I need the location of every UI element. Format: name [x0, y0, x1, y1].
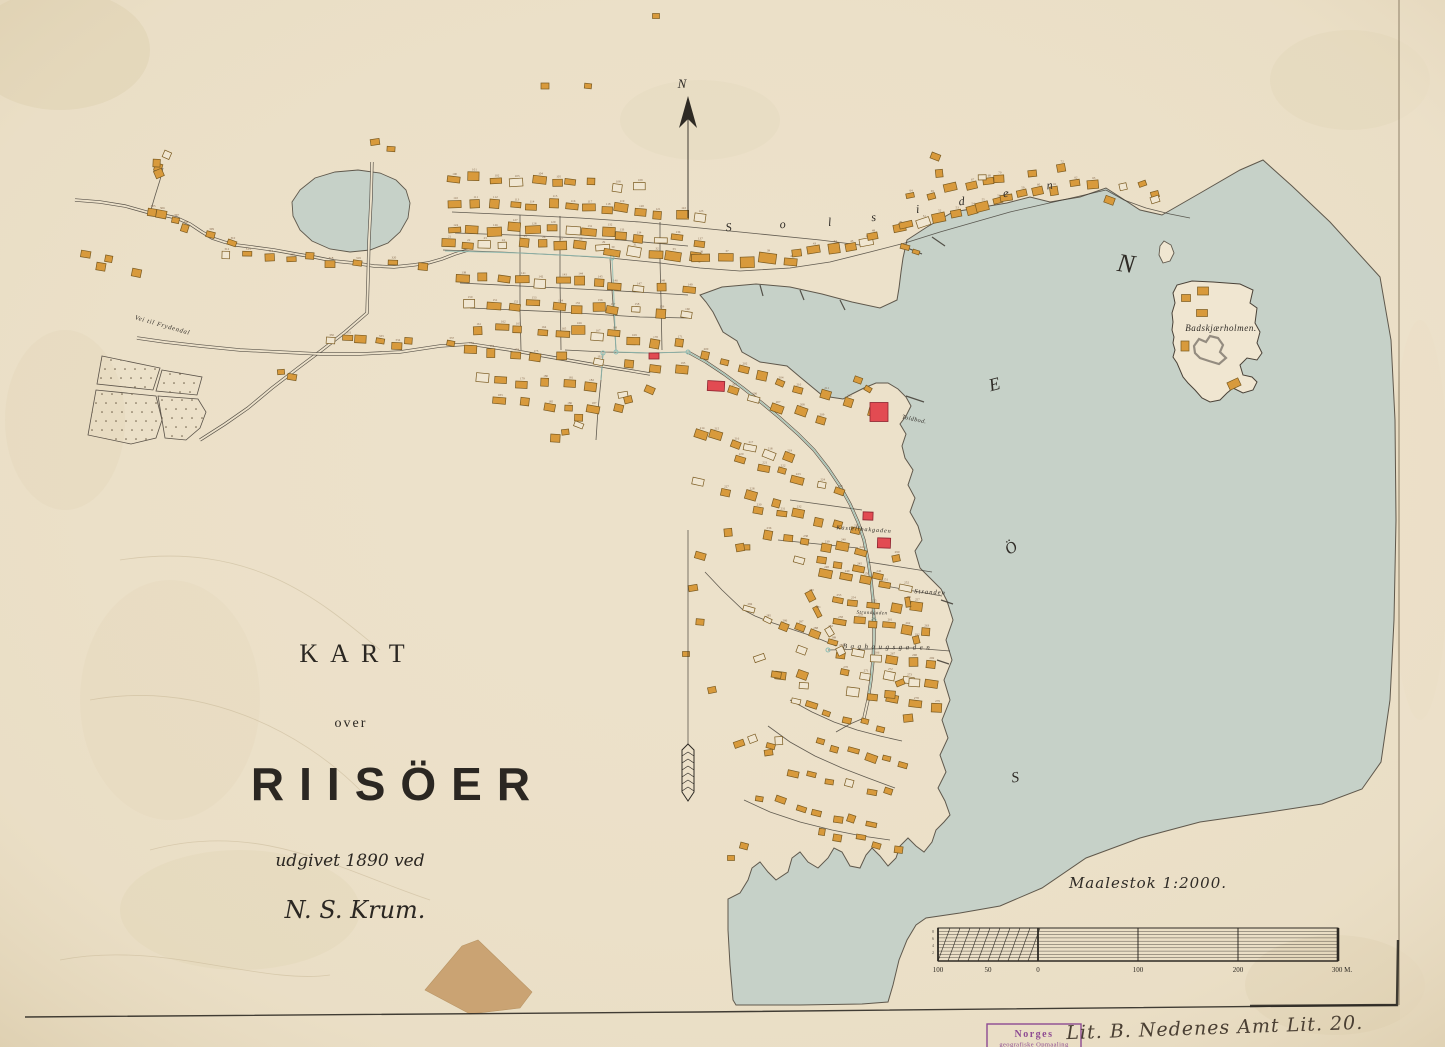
building	[353, 260, 362, 267]
building	[653, 14, 660, 19]
plot-number: 28	[579, 236, 583, 240]
plot-number: 252	[904, 581, 909, 585]
building	[131, 268, 142, 277]
plot-number: 136	[676, 230, 681, 234]
building	[549, 199, 558, 208]
plot-number: 195	[681, 361, 686, 365]
plot-number: 108	[616, 180, 621, 184]
building	[538, 329, 548, 336]
plot-number: 23	[484, 236, 488, 240]
plot-number: 292	[915, 632, 920, 636]
building	[492, 397, 505, 404]
plot-number: 25	[524, 234, 528, 238]
plot-number: 143	[562, 273, 567, 277]
plot-number: 305	[151, 204, 156, 208]
building	[763, 530, 773, 540]
plot-number: 114	[530, 200, 535, 204]
plot-number: 227	[724, 485, 729, 489]
plot-number: 239	[825, 539, 830, 543]
public-building-red	[870, 403, 888, 422]
building	[719, 253, 734, 261]
plot-number: 32	[655, 246, 659, 250]
plot-number: 48	[872, 228, 876, 232]
building	[490, 178, 502, 184]
building	[764, 749, 773, 756]
plot-number: 159	[659, 305, 664, 309]
building	[627, 246, 642, 258]
building	[994, 175, 1004, 183]
building	[156, 209, 167, 218]
building	[418, 263, 428, 271]
building	[573, 240, 586, 249]
building	[392, 342, 402, 349]
building	[508, 222, 521, 232]
building	[633, 285, 644, 292]
plot-number: 101	[472, 167, 477, 171]
plot-number: 131	[587, 224, 592, 228]
building	[509, 303, 520, 311]
building	[623, 395, 632, 403]
island-building	[1182, 295, 1191, 302]
plot-number: 248	[824, 565, 829, 569]
plot-number: 44	[834, 239, 838, 243]
plot-number: 149	[688, 282, 693, 286]
plot-number: 148	[660, 279, 665, 283]
building	[581, 228, 597, 236]
plot-number: 109	[638, 178, 643, 182]
building	[894, 846, 903, 854]
island-building	[1197, 310, 1208, 317]
building	[305, 252, 314, 259]
plot-number: 310	[230, 236, 235, 240]
plot-number: 63	[1092, 176, 1096, 180]
plot-number: 61	[1053, 182, 1057, 186]
building	[442, 239, 456, 247]
plot-number: 284	[747, 602, 752, 606]
building	[575, 276, 585, 285]
plot-number: 118	[606, 202, 611, 206]
plot-number: 62	[1074, 175, 1078, 179]
plot-number: 111	[473, 195, 478, 199]
plot-number: 231	[780, 506, 785, 510]
plot-number: 258	[838, 615, 843, 619]
building	[554, 241, 567, 250]
plot-number: 288	[813, 626, 818, 630]
building	[464, 345, 477, 353]
building	[463, 299, 474, 308]
building	[696, 619, 704, 626]
plot-number: 185	[548, 399, 553, 403]
plot-number: 67	[971, 178, 975, 182]
plot-number: 331	[346, 331, 351, 335]
plot-number: 290	[895, 550, 900, 554]
building	[1056, 163, 1065, 172]
scale-row-label: 8	[932, 929, 934, 934]
building	[624, 360, 634, 368]
map-title-kart: KART	[299, 639, 416, 668]
building	[799, 682, 809, 689]
plot-number: 122	[681, 206, 686, 210]
building	[775, 736, 783, 744]
island-building	[1181, 341, 1189, 351]
public-building-red	[863, 512, 873, 520]
plot-number: 225	[838, 484, 843, 488]
plot-number: 315	[290, 252, 295, 256]
plot-number: 306	[160, 206, 165, 210]
plot-number: 313	[246, 247, 251, 251]
building	[556, 277, 570, 283]
building	[792, 249, 802, 257]
building	[847, 600, 857, 607]
building	[771, 671, 782, 679]
building	[856, 834, 866, 840]
plot-number: 152	[513, 299, 518, 303]
plot-number: 238	[803, 534, 808, 538]
building	[883, 671, 895, 681]
plot-number: 312	[224, 247, 229, 251]
building	[602, 227, 615, 237]
building	[683, 652, 690, 657]
building	[633, 234, 643, 243]
plot-number: 230	[757, 503, 762, 507]
building	[724, 528, 732, 536]
building	[901, 624, 913, 635]
plot-number: 180	[543, 374, 548, 378]
building	[532, 175, 546, 184]
plot-number: 307	[174, 213, 179, 217]
plot-number: 267	[890, 651, 895, 655]
building	[627, 337, 640, 345]
plot-number: 138	[461, 270, 466, 274]
plot-number: 182	[589, 378, 594, 382]
plot-number: 115	[553, 194, 558, 198]
plot-number: 129	[551, 220, 556, 224]
plot-number: 153	[532, 295, 537, 299]
plot-number: 291	[906, 595, 911, 599]
building	[370, 138, 380, 145]
building	[821, 543, 832, 553]
building	[487, 349, 495, 358]
building	[462, 242, 474, 249]
building	[885, 655, 898, 665]
plot-number: 320	[391, 256, 396, 260]
building	[513, 326, 522, 333]
survey-stamp-line1: Norges	[1015, 1029, 1054, 1040]
building	[525, 225, 540, 233]
building	[343, 335, 353, 341]
building	[614, 202, 629, 212]
plot-number: 309	[209, 227, 214, 231]
plot-number: 251	[883, 578, 888, 582]
building	[470, 200, 480, 209]
building	[675, 365, 688, 374]
plot-number: 22	[467, 238, 471, 242]
plot-number: 270	[843, 665, 848, 669]
plot-number: 172	[469, 341, 474, 345]
building	[860, 672, 871, 680]
building	[649, 339, 660, 349]
scale-tick-label: 300 M.	[1332, 966, 1352, 974]
building	[882, 622, 895, 629]
building	[153, 159, 161, 167]
building	[910, 601, 923, 611]
plot-number: 228	[750, 486, 755, 490]
plot-number: 287	[799, 620, 804, 624]
plot-number: 179	[520, 377, 525, 381]
building	[924, 679, 938, 688]
plot-number: 156	[598, 298, 603, 302]
plot-number: 204	[779, 376, 784, 380]
building	[265, 254, 275, 262]
plot-number: 205	[732, 382, 737, 386]
plot-number: 278	[914, 696, 919, 700]
public-building-red	[649, 353, 659, 359]
building	[891, 603, 903, 614]
building	[473, 326, 482, 334]
plot-number: 308	[183, 220, 188, 224]
building	[607, 330, 620, 337]
building	[565, 405, 573, 411]
plot-number: 113	[515, 198, 520, 202]
building	[675, 338, 684, 347]
plot-number: 157	[611, 302, 616, 306]
building	[681, 311, 693, 319]
building	[525, 204, 536, 210]
plot-number: 167	[596, 328, 601, 332]
building	[909, 700, 922, 708]
plot-number: 169	[632, 333, 637, 337]
building	[171, 217, 179, 224]
plot-number: 100	[452, 172, 457, 176]
building	[476, 373, 489, 383]
plot-number: 186	[567, 401, 572, 405]
plot-number: 260	[871, 617, 876, 621]
north-arrow-label: N	[677, 76, 688, 91]
plot-number: 158	[635, 302, 640, 306]
building	[584, 83, 591, 89]
building	[556, 331, 570, 338]
plot-number: 171	[678, 334, 683, 338]
building	[817, 481, 826, 488]
building	[868, 621, 877, 628]
building	[926, 660, 936, 668]
plot-number: 183	[498, 393, 503, 397]
building	[520, 397, 529, 406]
building	[909, 679, 920, 687]
plot-number: 112	[493, 195, 498, 199]
building	[566, 203, 579, 210]
map-title-over: over	[335, 716, 368, 731]
building	[607, 283, 621, 291]
plot-number: 173	[489, 344, 494, 348]
plot-number: 241	[859, 545, 864, 549]
plot-number: 266	[875, 651, 880, 655]
building	[854, 616, 866, 623]
building	[635, 208, 647, 216]
plot-number: 33	[672, 247, 676, 251]
building	[243, 251, 252, 256]
building	[468, 172, 479, 181]
plot-number: 103	[515, 174, 520, 178]
island-label-group: Badskjærholmen.	[1185, 323, 1257, 333]
plot-number: 250	[864, 572, 869, 576]
building	[553, 179, 563, 186]
plot-number: 37	[725, 249, 729, 253]
plot-number: 134	[637, 230, 642, 234]
plot-number: 164	[541, 325, 546, 329]
building	[465, 225, 478, 233]
plot-number: 70	[998, 171, 1002, 175]
building	[753, 506, 764, 514]
plot-number: 132	[608, 223, 613, 227]
building	[487, 302, 501, 310]
building	[105, 255, 113, 263]
plot-number: 104	[538, 171, 543, 175]
plot-number: 26	[542, 235, 546, 239]
plot-number: 215	[714, 426, 719, 430]
scale-row-label: 6	[932, 936, 934, 941]
building	[885, 690, 896, 698]
plot-number: 263	[924, 623, 929, 627]
building	[903, 714, 913, 723]
building	[694, 240, 705, 247]
plot-number: 334	[395, 338, 400, 342]
plot-number: 146	[613, 279, 618, 283]
building	[783, 535, 792, 542]
plot-number: 150	[468, 295, 473, 299]
building	[909, 658, 918, 667]
building	[582, 204, 595, 211]
plot-number: 181	[568, 375, 573, 379]
plot-number: 21	[448, 234, 452, 238]
building	[740, 257, 754, 268]
building	[553, 302, 566, 311]
building	[833, 834, 842, 842]
plot-number: 210	[796, 382, 801, 386]
building	[694, 213, 706, 223]
plot-number: 65	[931, 189, 935, 193]
plot-number: 249	[845, 569, 850, 573]
building	[515, 275, 529, 282]
plot-number: 166	[577, 321, 582, 325]
building	[846, 687, 859, 697]
plot-number: 281	[816, 605, 821, 609]
plot-number: 151	[493, 298, 498, 302]
public-building-red	[877, 538, 890, 548]
building	[800, 538, 809, 545]
plot-number: 208	[800, 402, 805, 406]
plot-number: 29	[602, 240, 606, 244]
building	[277, 369, 284, 375]
scale-tick-label: 200	[1233, 966, 1244, 974]
plot-number: 187	[592, 401, 597, 405]
plot-number: 162	[501, 320, 506, 324]
plot-number: 192	[597, 354, 602, 358]
plot-number: 144	[578, 272, 583, 276]
plot-number: 240	[841, 538, 846, 542]
plot-number: 142	[538, 275, 543, 279]
building	[541, 83, 549, 89]
plot-number: 117	[588, 199, 593, 203]
building	[656, 309, 666, 319]
scale-title: Maalestok 1:2000.	[1068, 874, 1227, 892]
scale-tick-label: 0	[1036, 966, 1040, 974]
building	[828, 243, 841, 254]
public-building-red	[707, 381, 725, 392]
plot-number: 168	[612, 326, 617, 330]
building	[376, 338, 385, 344]
building	[833, 816, 843, 824]
building	[572, 326, 585, 335]
building	[526, 300, 540, 306]
plot-number: 206	[752, 392, 757, 396]
plot-number: 154	[558, 298, 563, 302]
building	[325, 261, 335, 268]
building	[591, 332, 604, 341]
plot-number: 318	[329, 256, 334, 260]
building	[80, 250, 91, 258]
plot-number: 221	[762, 461, 767, 465]
plot-number: 145	[598, 274, 603, 278]
building	[615, 232, 626, 240]
plot-number: 269	[929, 656, 934, 660]
plot-number: 200	[704, 347, 709, 351]
plot-number: 127	[513, 218, 518, 222]
building	[594, 279, 604, 287]
building	[755, 796, 763, 802]
building	[574, 414, 582, 421]
building	[758, 252, 776, 264]
island-label: Badskjærholmen.	[1185, 323, 1257, 333]
plot-number: 207	[776, 400, 781, 404]
building	[688, 584, 698, 591]
plot-number: 165	[561, 327, 566, 331]
building	[147, 208, 156, 217]
building	[509, 178, 523, 187]
building	[534, 279, 546, 289]
plot-number: 209	[820, 412, 825, 416]
street-label: Baghaugsgaden	[843, 642, 934, 652]
island-building	[1198, 287, 1209, 295]
plot-number: 219	[787, 448, 792, 452]
building	[653, 211, 662, 219]
building	[494, 376, 506, 383]
building	[931, 703, 942, 712]
plot-number: 52	[938, 209, 942, 213]
plot-number: 261	[888, 618, 893, 622]
building	[867, 602, 880, 609]
building	[720, 488, 730, 497]
building	[671, 234, 683, 241]
building	[735, 543, 744, 552]
building	[222, 251, 230, 259]
plot-number: 141	[521, 271, 526, 275]
building	[950, 209, 962, 218]
plot-number: 120	[639, 204, 644, 208]
plot-number: 279	[935, 699, 940, 703]
plot-number: 254	[851, 596, 856, 600]
building	[867, 232, 878, 241]
building	[448, 227, 460, 233]
building	[612, 184, 622, 193]
building	[683, 286, 696, 293]
map-title-published: udgivet 1890 ved	[275, 851, 424, 871]
plot-number: 271	[864, 669, 869, 673]
plot-number: 64	[909, 189, 913, 193]
building	[813, 517, 823, 527]
plot-number: 174	[514, 347, 519, 351]
building	[1087, 180, 1099, 189]
